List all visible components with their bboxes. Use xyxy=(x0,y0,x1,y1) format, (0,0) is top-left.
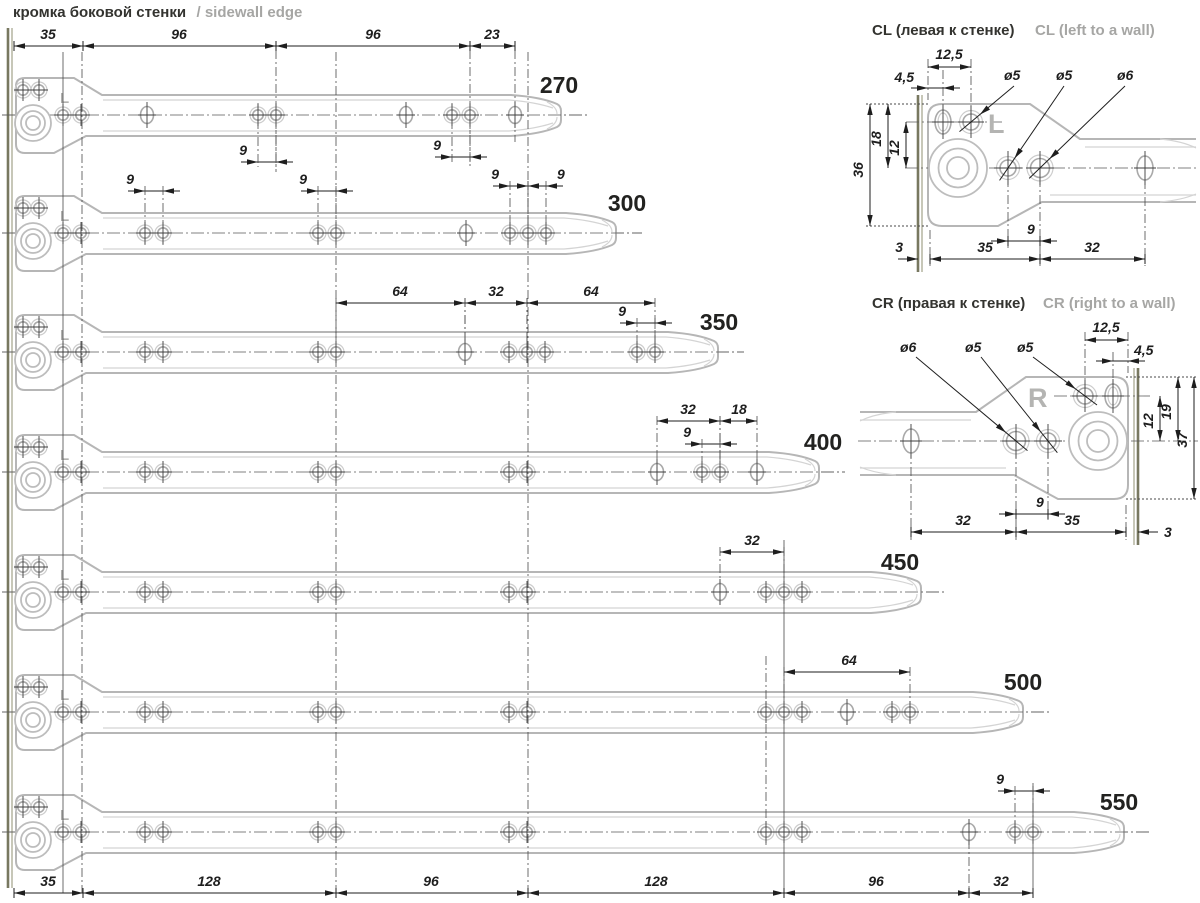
dimension-arrow xyxy=(930,256,941,261)
dimension-arrow xyxy=(709,418,720,423)
dimension-label: 9 xyxy=(126,171,134,187)
dimension-arrow xyxy=(1191,488,1196,499)
dimension-arrow xyxy=(720,441,731,446)
dimension-arrow xyxy=(546,183,557,188)
slide-body xyxy=(16,315,718,390)
dimension-arrow xyxy=(1085,337,1096,342)
dimension-arrow xyxy=(528,890,539,895)
dimension: 9 xyxy=(683,424,737,447)
dimension-label: 4,5 xyxy=(1133,342,1154,358)
slide-length-label: 350 xyxy=(700,309,738,335)
dimension: 9 xyxy=(996,771,1050,794)
dimension-arrow xyxy=(307,188,318,193)
dimension-label: 32 xyxy=(680,401,696,417)
dimension-arrow xyxy=(134,188,145,193)
dimension-arrow xyxy=(1128,358,1139,363)
dimension-label: 12 xyxy=(886,140,902,156)
dimension-arrow xyxy=(14,890,25,895)
dimension-label: 35 xyxy=(40,873,56,889)
dimension-arrow xyxy=(516,300,527,305)
slide-550: L5509 xyxy=(2,771,1150,870)
dimension-arrow xyxy=(911,529,922,534)
dimension-label: 3 xyxy=(895,239,903,255)
drawing-canvas: кромка боковой стенки / sidewall edge L2… xyxy=(0,0,1200,903)
detail-title-en: CL (left to a wall) xyxy=(1035,22,1155,39)
dimension-arrow xyxy=(276,159,287,164)
dimension-label: 96 xyxy=(365,26,381,42)
slide-300: L3009999 xyxy=(2,166,646,271)
dimension-arrow xyxy=(917,85,928,90)
dimension: 32 xyxy=(1040,239,1145,262)
slide-270: L27099 xyxy=(2,72,587,167)
sidewall-edge-line xyxy=(8,28,12,888)
dimension: 3 xyxy=(895,239,918,262)
dimension-arrow xyxy=(997,238,1008,243)
page-title: кромка боковой стенки / sidewall edge xyxy=(13,4,302,21)
dimension-arrow xyxy=(336,300,347,305)
slide-length-label: 550 xyxy=(1100,789,1138,815)
dimension-label: 32 xyxy=(744,532,760,548)
technical-drawing-page: кромка боковой стенки / sidewall edge L2… xyxy=(0,0,1200,903)
dimension-arrow xyxy=(691,441,702,446)
dimension-arrow xyxy=(644,300,655,305)
dimension-arrow xyxy=(1102,358,1113,363)
marking-letter: L xyxy=(60,90,69,107)
dimension-arrow xyxy=(907,256,918,261)
dimension-arrow xyxy=(163,188,174,193)
dimension: 32 xyxy=(911,512,1016,535)
marking-letter: L xyxy=(60,567,69,584)
dimension-arrow xyxy=(465,300,476,305)
marking-letter: L xyxy=(60,447,69,464)
dimension: 4,5 xyxy=(1096,342,1154,364)
dimension-arrow xyxy=(1175,377,1180,388)
dimension-arrow xyxy=(459,43,470,48)
slide-400: L40032189 xyxy=(2,401,845,510)
dimension-label: 64 xyxy=(392,283,408,299)
dimension-label: 12,5 xyxy=(935,46,962,62)
dimension-label: 23 xyxy=(483,26,500,42)
bottom-dimension-chain: 35128961289632 xyxy=(14,873,1033,898)
slide-body xyxy=(16,78,561,153)
dimension-arrow xyxy=(517,890,528,895)
slide-length-label: 300 xyxy=(608,190,646,216)
dimension-arrow xyxy=(1040,256,1051,261)
dimension-label: 9 xyxy=(239,142,247,158)
dimension-arrow xyxy=(969,890,980,895)
dimension-label: 36 xyxy=(850,162,866,178)
dimension-arrow xyxy=(470,154,481,159)
dimension-arrow xyxy=(1117,337,1128,342)
dimension-arrow xyxy=(903,157,908,168)
dimension-label: 96 xyxy=(423,873,439,889)
generated-drawing: L27099L3009999L3506432649L40032189L45032… xyxy=(2,22,1198,898)
detail-cr: CR (правая к стенке)CR (right to a wall)… xyxy=(858,295,1198,545)
roller xyxy=(1069,412,1127,470)
roller xyxy=(15,342,51,378)
slide-350: L3506432649 xyxy=(2,283,744,390)
dimension: 32 xyxy=(657,401,720,424)
dimension-arrow xyxy=(276,43,287,48)
dimension: 64 xyxy=(336,283,465,306)
dimension-arrow xyxy=(470,43,481,48)
dimension: 12,5 xyxy=(928,46,971,70)
dimension: 3 xyxy=(1138,524,1172,540)
dimension-arrow xyxy=(960,64,971,69)
dimension: 9 xyxy=(299,171,353,194)
dimension-arrow xyxy=(1157,430,1162,441)
roller xyxy=(15,582,51,618)
detail-title-ru: CR (правая к стенке) xyxy=(872,295,1025,312)
dimension-label: 12 xyxy=(1140,413,1156,429)
slide-length-label: 450 xyxy=(881,549,919,575)
roller xyxy=(929,139,987,197)
dimension: 18 xyxy=(720,401,757,424)
dimension-arrow xyxy=(784,669,795,674)
dimension-arrow xyxy=(899,669,910,674)
dimension-arrow xyxy=(72,43,83,48)
dimension-arrow xyxy=(943,85,954,90)
dimension-arrow xyxy=(1005,511,1016,516)
dimension-arrow xyxy=(867,104,872,115)
slide-body xyxy=(16,555,921,630)
marking-letter: L xyxy=(60,687,69,704)
dimension-label: 3 xyxy=(1164,524,1172,540)
roller xyxy=(15,223,51,259)
dimension-arrow xyxy=(720,418,731,423)
marking-letter: L xyxy=(988,109,1005,139)
dimension: 64 xyxy=(784,652,910,675)
dimension-arrow xyxy=(325,890,336,895)
dimension-arrow xyxy=(504,43,515,48)
dimension-arrow xyxy=(265,43,276,48)
dimension-label: 32 xyxy=(1084,239,1100,255)
dimension-arrow xyxy=(499,183,510,188)
slide-body xyxy=(16,196,616,271)
marking-letter: L xyxy=(60,208,69,225)
dimension-label: 4,5 xyxy=(894,69,915,85)
dimension-arrow xyxy=(655,320,666,325)
detail-cl: CL (левая к стенке)CL (left to a wall)L1… xyxy=(850,22,1198,272)
slide-450: L45032 xyxy=(2,532,947,630)
dimension-label: 9 xyxy=(557,166,565,182)
roller xyxy=(15,702,51,738)
slide-length-label: 500 xyxy=(1004,669,1042,695)
dimension: 9 xyxy=(433,137,487,160)
dimension: 32 xyxy=(720,532,784,555)
dimension: 35 xyxy=(930,239,1040,262)
dimension-label: 64 xyxy=(841,652,857,668)
dimension-label: 64 xyxy=(583,283,599,299)
dimension-label: 9 xyxy=(491,166,499,182)
dimension-label: 35 xyxy=(977,239,993,255)
dimension-label: 128 xyxy=(644,873,668,889)
dimension: 12,5 xyxy=(1085,319,1128,343)
roller xyxy=(15,105,51,141)
dimension-label: 32 xyxy=(955,512,971,528)
dimension-chain: 35969623 xyxy=(14,26,515,51)
slide-500: L50064 xyxy=(2,652,1049,750)
dimension-arrow xyxy=(441,154,452,159)
dimension-label: 32 xyxy=(488,283,504,299)
dimension-arrow xyxy=(885,157,890,168)
hole-diameter-label: ø5 xyxy=(1056,67,1073,83)
dimension-arrow xyxy=(903,122,908,133)
slide-length-label: 400 xyxy=(804,429,842,455)
dimension-arrow xyxy=(1134,256,1145,261)
dimension-arrow xyxy=(784,890,795,895)
dimension-arrow xyxy=(773,890,784,895)
dimension-arrow xyxy=(454,300,465,305)
dimension-label: 96 xyxy=(868,873,884,889)
dimension-arrow xyxy=(1016,529,1027,534)
dimension-arrow xyxy=(72,890,83,895)
roller xyxy=(15,462,51,498)
dimension-arrow xyxy=(1033,788,1044,793)
slide-length-label: 270 xyxy=(540,72,578,98)
hole-diameter-label: ø5 xyxy=(965,339,982,355)
dimension-arrow xyxy=(626,320,637,325)
page-title-en: / sidewall edge xyxy=(197,4,303,21)
dimension-label: 9 xyxy=(996,771,1004,787)
dimension-label: 18 xyxy=(868,131,884,147)
dimension-label: 96 xyxy=(171,26,187,42)
hole-diameter-label: ø6 xyxy=(900,339,917,355)
dimension-arrow xyxy=(885,104,890,115)
dimension-arrow xyxy=(1040,238,1051,243)
dimension-label: 9 xyxy=(683,424,691,440)
dimension-arrow xyxy=(527,300,538,305)
dimension: 9 xyxy=(126,171,180,194)
dimension-label: 9 xyxy=(1027,221,1035,237)
dimension-arrow xyxy=(247,159,258,164)
dimension-arrow xyxy=(1029,256,1040,261)
dimension-arrow xyxy=(83,890,94,895)
dimension-arrow xyxy=(14,43,25,48)
dimension-label: 12,5 xyxy=(1092,319,1119,335)
dimension-arrow xyxy=(1048,511,1059,516)
marking-letter: L xyxy=(60,807,69,824)
hole-diameter-label: ø5 xyxy=(1017,339,1034,355)
dimension-arrow xyxy=(1022,890,1033,895)
dimension: 64 xyxy=(527,283,655,306)
dimension-arrow xyxy=(720,549,731,554)
dimension-arrow xyxy=(928,64,939,69)
dimension-label: 9 xyxy=(433,137,441,153)
dimension-label: 35 xyxy=(40,26,56,42)
dimension-arrow xyxy=(958,890,969,895)
dimension-label: 9 xyxy=(299,171,307,187)
dimension-arrow xyxy=(83,43,94,48)
dimension: 37 xyxy=(1174,377,1197,499)
hole-diameter-label: ø5 xyxy=(1004,67,1021,83)
marking-letter: R xyxy=(1028,383,1048,413)
dimension-chain: 35128961289632 xyxy=(14,873,1033,898)
dimension-label: 32 xyxy=(993,873,1009,889)
dimension: 9 xyxy=(239,142,293,165)
dimension-arrow xyxy=(1005,529,1016,534)
dimension-label: 19 xyxy=(1158,404,1174,420)
page-title-ru: кромка боковой стенки xyxy=(13,4,186,21)
dimension-arrow xyxy=(1115,529,1126,534)
dimension: 32 xyxy=(465,283,527,306)
dimension: 35 xyxy=(1016,512,1126,535)
detail-title-en: CR (right to a wall) xyxy=(1043,295,1176,312)
detail-title-ru: CL (левая к стенке) xyxy=(872,22,1014,39)
dimension-arrow xyxy=(517,183,528,188)
dimension-arrow xyxy=(1138,529,1149,534)
dimension-label: 35 xyxy=(1064,512,1080,528)
marking-letter: L xyxy=(60,327,69,344)
dimension-arrow xyxy=(1191,377,1196,388)
dimension: 36 xyxy=(850,104,873,226)
roller xyxy=(15,822,51,858)
dimension-arrow xyxy=(1004,788,1015,793)
dimension-label: 18 xyxy=(731,401,747,417)
dimension: 9 xyxy=(618,303,672,326)
dimension-arrow xyxy=(746,418,757,423)
dimension-arrow xyxy=(336,188,347,193)
dimension-label: 9 xyxy=(1036,494,1044,510)
slide-body xyxy=(16,795,1124,870)
dimension-arrow xyxy=(867,215,872,226)
hole-diameter-label: ø6 xyxy=(1117,67,1134,83)
dimension: 4,5 xyxy=(894,69,960,91)
dimension-arrow xyxy=(773,549,784,554)
dimension-label: 37 xyxy=(1174,431,1190,448)
top-dimension-chain: 35969623 xyxy=(14,26,515,51)
dimension-arrow xyxy=(657,418,668,423)
dimension-label: 128 xyxy=(197,873,221,889)
dimension-arrow xyxy=(336,890,347,895)
dimension-label: 9 xyxy=(618,303,626,319)
